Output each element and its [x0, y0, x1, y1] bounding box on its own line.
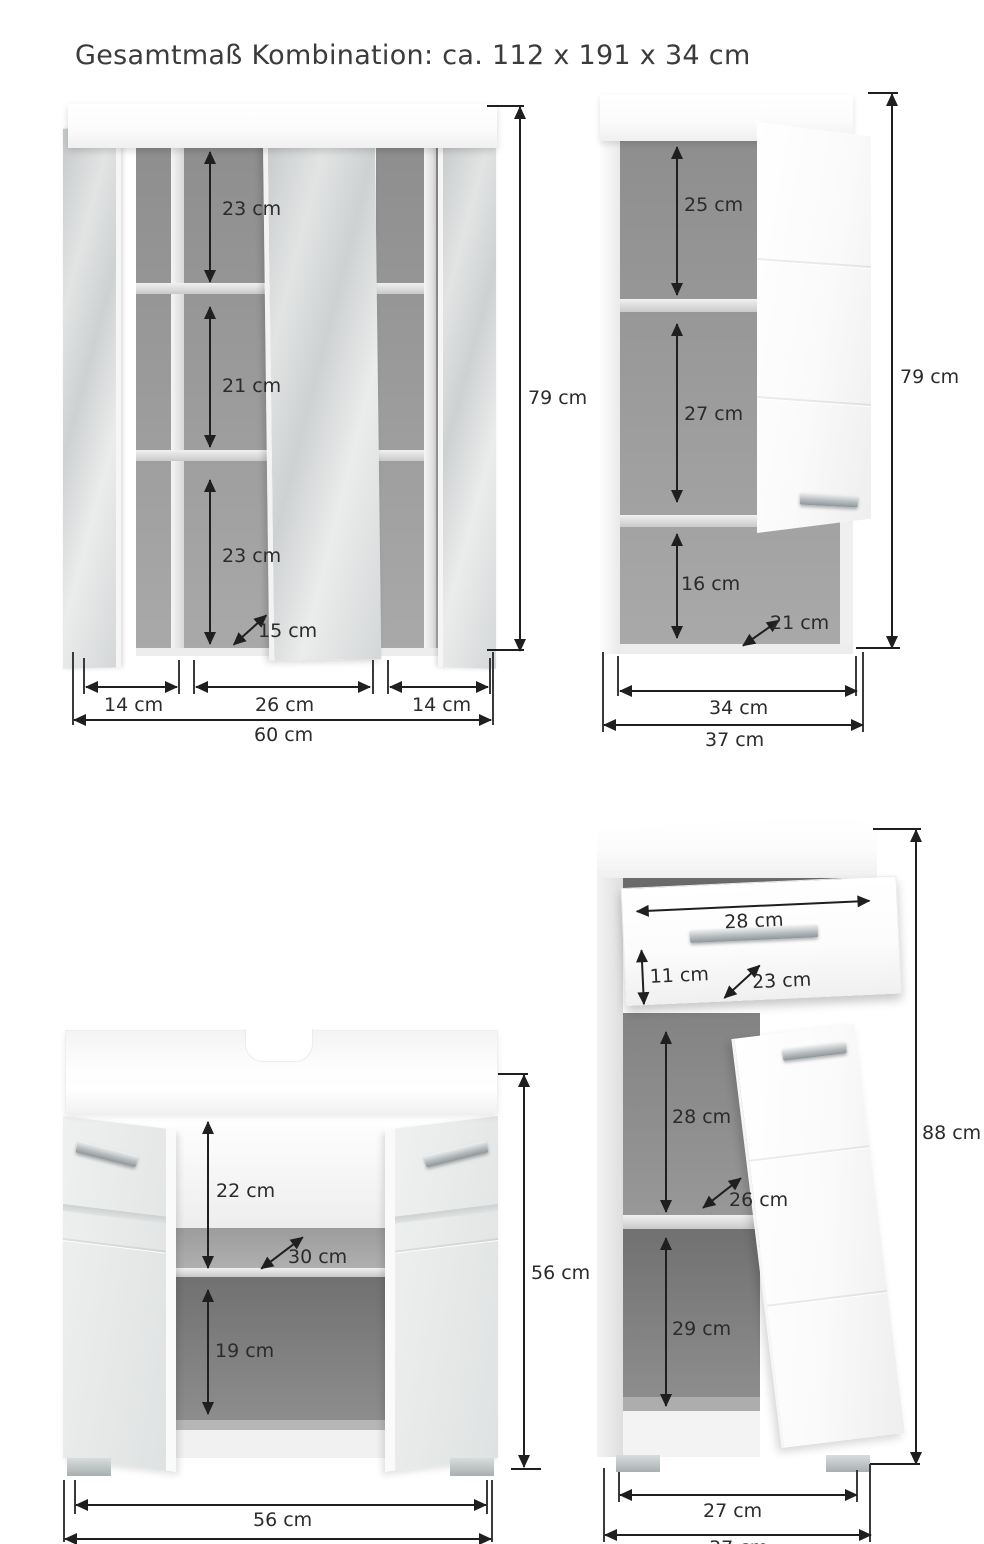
mirror-cabinet-top-panel — [68, 104, 497, 148]
mirror-cabinet-shelf-1 — [136, 283, 270, 294]
dim-label-tall-depth: 26 cm — [729, 1189, 788, 1211]
dim-arrow-sink-top — [207, 1122, 209, 1268]
tall-cabinet-foot-left — [616, 1455, 660, 1472]
sink-cabinet-shelf-edge — [175, 1268, 385, 1277]
dim-arrow-tall-bottom — [665, 1238, 667, 1406]
ext-line — [372, 660, 374, 694]
dim-label-wall-width-total: 37 cm — [705, 729, 764, 751]
sink-cabinet-foot-right — [450, 1458, 494, 1476]
dim-label-mirror-width-total: 60 cm — [254, 724, 313, 746]
dim-label-sink-bottom: 19 cm — [215, 1340, 274, 1362]
door-groove — [767, 1290, 887, 1307]
dim-label-mirror-shelf-bottom: 23 cm — [222, 545, 281, 567]
wall-cabinet-shelf-1 — [620, 299, 758, 312]
dim-arrow-tall-drawer-front — [640, 950, 644, 1004]
dim-arrow-mirror-height — [519, 107, 521, 651]
tall-cabinet-shelf — [623, 1215, 760, 1229]
tall-cabinet-base — [623, 1411, 760, 1457]
dim-label-mirror-width-center: 26 cm — [255, 694, 314, 716]
dim-label-wall-middle: 27 cm — [684, 403, 743, 425]
dim-label-wall-height: 79 cm — [900, 366, 959, 388]
dim-label-wall-depth: 21 cm — [770, 612, 829, 634]
sink-cabinet-door-left — [63, 1116, 176, 1472]
tall-cabinet-foot-right — [826, 1455, 870, 1472]
dim-arrow-wall-middle — [676, 324, 678, 502]
wall-cabinet-bottom-edge — [620, 644, 853, 654]
dim-arrow-tall-height — [915, 830, 917, 1464]
dim-label-tall-drawer-depth: 23 cm — [752, 969, 812, 994]
dim-arrow-tall-width-outer — [605, 1534, 871, 1536]
sink-cabinet-base — [175, 1430, 385, 1458]
dim-arrow-mirror-width-total — [74, 719, 491, 721]
dim-label-sink-height: 56 cm — [531, 1262, 590, 1284]
dim-label-tall-height: 88 cm — [922, 1122, 981, 1144]
dim-arrow-sink-height — [523, 1075, 525, 1467]
mirror-cabinet-divider-left — [171, 146, 184, 652]
page-title: Gesamtmaß Kombination: ca. 112 x 191 x 3… — [75, 40, 751, 71]
dim-label-wall-top: 25 cm — [684, 194, 743, 216]
dim-label-tall-width-outer: 37 cm — [709, 1537, 768, 1544]
door-groove — [395, 1204, 498, 1224]
dim-arrow-mirror-shelf-middle — [209, 307, 211, 447]
dim-tick-wall-height-bottom — [856, 647, 900, 649]
ext-line — [489, 658, 491, 694]
dim-label-sink-depth: 30 cm — [288, 1246, 347, 1268]
dim-arrow-wall-bottom — [676, 534, 678, 638]
tall-cabinet-drawer-handle — [690, 924, 818, 943]
dim-tick-mirror-height-bottom — [487, 649, 524, 651]
wall-cabinet-left-side — [600, 140, 621, 654]
diagram-canvas: Gesamtmaß Kombination: ca. 112 x 191 x 3… — [0, 0, 984, 1544]
door-groove — [395, 1238, 498, 1253]
dim-arrow-mirror-shelf-top — [209, 152, 211, 282]
dim-arrow-mirror-shelf-bottom — [209, 480, 211, 644]
sink-cutout — [245, 1029, 313, 1062]
dim-label-tall-width-inner: 27 cm — [703, 1500, 762, 1522]
tall-cabinet-top-panel — [597, 814, 877, 878]
wall-cabinet-shelf-2 — [620, 515, 758, 527]
mirror-cabinet-shelf-2 — [136, 450, 270, 461]
dim-label-mirror-shelf-middle: 21 cm — [222, 375, 281, 397]
tall-cabinet-left-side — [597, 877, 623, 1457]
dim-label-sink-top: 22 cm — [216, 1180, 275, 1202]
dim-arrow-sink-width-outer — [65, 1538, 491, 1540]
sink-cabinet-foot-left — [67, 1458, 111, 1476]
door-groove — [63, 1238, 166, 1253]
dim-label-sink-width-inner: 56 cm — [253, 1509, 312, 1531]
sink-cabinet-door-right — [385, 1116, 498, 1472]
mirror-cabinet-shelf-4 — [376, 450, 424, 461]
dim-label-mirror-height: 79 cm — [528, 387, 587, 409]
dim-tick-sink-height-bottom — [511, 1468, 541, 1470]
mirror-cabinet-divider-right — [424, 146, 436, 652]
dim-arrow-wall-height — [891, 94, 893, 648]
dim-label-mirror-width-right: 14 cm — [412, 694, 471, 716]
dim-label-tall-middle: 28 cm — [672, 1106, 731, 1128]
door-groove — [757, 396, 871, 406]
dim-arrow-sink-bottom — [207, 1290, 209, 1414]
dim-label-wall-width-inner: 34 cm — [709, 697, 768, 719]
dim-arrow-mirror-width-right — [390, 686, 488, 688]
ext-line — [178, 660, 180, 694]
dim-label-mirror-shelf-top: 23 cm — [222, 198, 281, 220]
tall-cabinet-drawer: 28 cm 11 cm 23 cm — [621, 876, 902, 1006]
mirror-door-right — [438, 127, 496, 669]
ext-line — [492, 652, 494, 725]
tall-cabinet-floor — [623, 1397, 760, 1411]
dim-label-mirror-width-left: 14 cm — [104, 694, 163, 716]
dim-arrow-tall-middle — [665, 1032, 667, 1212]
dim-arrow-tall-width-inner — [620, 1494, 857, 1496]
dim-arrow-sink-width-inner — [76, 1504, 486, 1506]
door-groove — [63, 1204, 166, 1224]
mirror-cabinet-shelf-3 — [376, 283, 424, 294]
dim-arrow-wall-top — [676, 147, 678, 295]
dim-arrow-wall-width-inner — [620, 690, 857, 692]
door-groove — [757, 258, 871, 268]
dim-arrow-mirror-width-left — [86, 686, 177, 688]
dim-arrow-mirror-width-center — [196, 686, 370, 688]
dim-label-wall-bottom: 16 cm — [681, 573, 740, 595]
dim-tick-tall-height-bottom — [870, 1463, 920, 1465]
door-groove — [749, 1145, 869, 1162]
wall-cabinet-door — [757, 122, 871, 533]
dim-arrow-wall-width-total — [604, 724, 863, 726]
mirror-cabinet-interior-left — [136, 146, 270, 652]
dim-label-mirror-depth: 15 cm — [258, 620, 317, 642]
dim-label-tall-drawer-front: 11 cm — [649, 963, 709, 988]
dim-label-tall-bottom: 29 cm — [672, 1318, 731, 1340]
mirror-door-left — [63, 127, 121, 669]
tall-cabinet-lower-compartment — [623, 1229, 760, 1397]
tall-cabinet-door-handle — [782, 1041, 847, 1061]
